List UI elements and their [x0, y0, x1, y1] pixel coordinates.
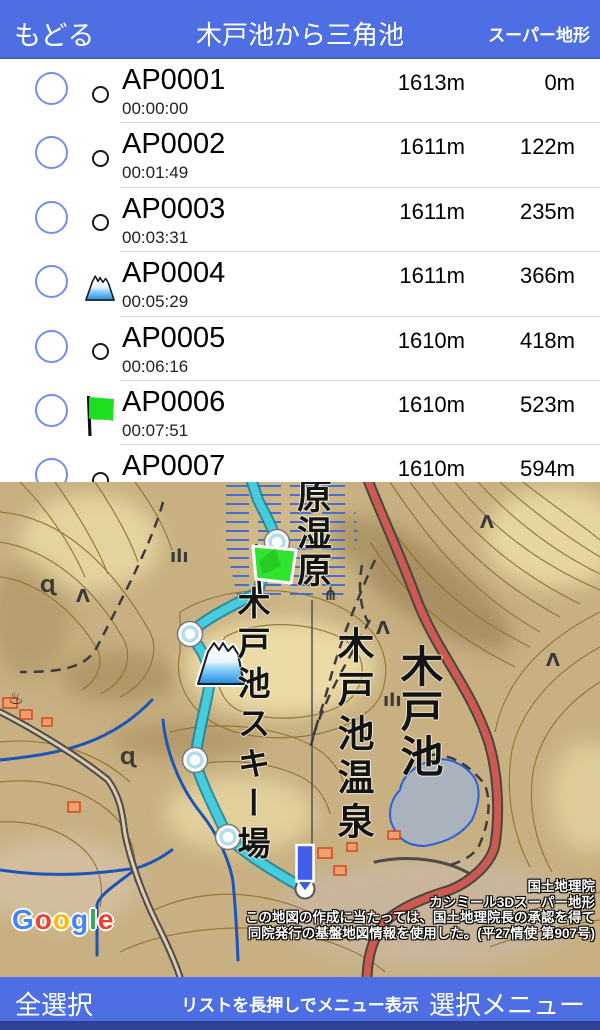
waypoint-name: AP0003 — [122, 193, 225, 226]
svg-text:Λ: Λ — [76, 586, 90, 607]
waypoint-name: AP0006 — [122, 386, 225, 419]
top-navigation-bar: もどる 木戸池から三角池 スーパー地形 — [0, 0, 600, 59]
selection-circle[interactable] — [35, 136, 68, 169]
mountain-icon — [84, 270, 116, 304]
map-label-lake: 木戸池 — [396, 644, 439, 779]
map-label-ski-area: 木戸池スキー場 — [235, 586, 268, 866]
map-label-wetland: 原湿原 — [294, 482, 329, 589]
waypoint-distance: 418m — [520, 328, 575, 354]
selection-circle[interactable] — [35, 394, 68, 427]
waypoint-dot-icon — [84, 463, 116, 482]
waypoint-distance: 0m — [544, 70, 575, 96]
bottom-toolbar: 全選択 リストを長押しでメニュー表示 選択メニュー — [0, 977, 600, 1021]
waypoint-elevation: 1611m — [399, 134, 465, 160]
selection-circle[interactable] — [35, 458, 68, 482]
svg-text:Λ: Λ — [546, 650, 560, 671]
list-item[interactable]: AP0001 00:00:00 1613m 0m — [0, 59, 600, 123]
svg-text:♨: ♨ — [8, 688, 24, 709]
waypoint-dot-icon — [84, 141, 116, 175]
waypoint-distance: 366m — [520, 263, 575, 289]
google-logo: Google — [12, 904, 114, 936]
svg-text:Ɋ: Ɋ — [120, 748, 137, 769]
waypoint-dot-icon — [84, 335, 116, 369]
map-label-onsen: 木戸池温泉 — [334, 626, 371, 846]
waypoint-name: AP0007 — [122, 450, 225, 482]
list-item[interactable]: AP0002 00:01:49 1611m 122m — [0, 123, 600, 187]
waypoint-list[interactable]: AP0001 00:00:00 1613m 0m AP0002 00:01:49… — [0, 59, 600, 482]
map-view[interactable]: ♨ΛΛΛΛ⋔ılıılıɊɊ — [0, 482, 600, 977]
waypoint-name: AP0005 — [122, 322, 225, 355]
waypoint-elevation: 1611m — [399, 263, 465, 289]
list-item[interactable]: AP0004 00:05:29 1611m 366m — [0, 252, 600, 316]
waypoint-distance: 523m — [520, 392, 575, 418]
waypoint-distance: 122m — [520, 134, 575, 160]
waypoint-distance: 594m — [520, 456, 575, 482]
selection-circle[interactable] — [35, 201, 68, 234]
waypoint-name: AP0001 — [122, 64, 225, 97]
svg-text:Λ: Λ — [376, 618, 390, 639]
selection-circle[interactable] — [35, 265, 68, 298]
waypoint-elevation: 1611m — [399, 199, 465, 225]
svg-text:ılı: ılı — [170, 546, 189, 567]
waypoint-distance: 235m — [520, 199, 575, 225]
waypoint-time: 00:06:16 — [122, 357, 188, 377]
svg-text:Λ: Λ — [480, 512, 494, 533]
waypoint-time: 00:00:00 — [122, 99, 188, 119]
app-screen: もどる 木戸池から三角池 スーパー地形 AP0001 00:00:00 1613… — [0, 0, 600, 1030]
list-item[interactable]: AP0003 00:03:31 1611m 235m — [0, 188, 600, 252]
selection-menu-button[interactable]: 選択メニュー — [429, 985, 585, 1022]
waypoint-name: AP0002 — [122, 128, 225, 161]
list-item[interactable]: AP0007 1610m 594m — [0, 445, 600, 482]
attribution-line: 国土地理院 — [245, 879, 595, 895]
attribution-line: 同院発行の基盤地図情報を使用した。(平27情使 第907号) — [245, 926, 595, 942]
map-style-button[interactable]: スーパー地形 — [488, 21, 590, 46]
flag-icon — [84, 399, 116, 433]
waypoint-marker — [178, 622, 203, 647]
waypoint-dot-icon — [84, 206, 116, 240]
svg-text:Ɋ: Ɋ — [40, 576, 57, 597]
waypoint-time: 00:07:51 — [122, 421, 188, 441]
waypoint-name: AP0004 — [122, 257, 225, 290]
selection-circle[interactable] — [35, 72, 68, 105]
waypoint-elevation: 1610m — [398, 392, 465, 418]
bottom-strip — [0, 1021, 600, 1030]
selection-circle[interactable] — [35, 330, 68, 363]
waypoint-elevation: 1610m — [398, 328, 465, 354]
waypoint-elevation: 1610m — [398, 456, 465, 482]
waypoint-marker — [183, 748, 208, 773]
waypoint-time: 00:05:29 — [122, 292, 188, 312]
waypoint-elevation: 1613m — [398, 70, 465, 96]
waypoint-time: 00:03:31 — [122, 228, 188, 248]
map-attribution: 国土地理院 カシミール3Dスーパー地形 この地図の作成に当たっては、国土地理院長… — [245, 879, 595, 941]
attribution-line: カシミール3Dスーパー地形 — [245, 895, 595, 911]
attribution-line: この地図の作成に当たっては、国土地理院長の承認を得て — [245, 910, 595, 926]
list-item[interactable]: AP0005 00:06:16 1610m 418m — [0, 317, 600, 381]
waypoint-time: 00:01:49 — [122, 163, 188, 183]
waypoint-dot-icon — [84, 77, 116, 111]
list-item[interactable]: AP0006 00:07:51 1610m 523m — [0, 381, 600, 445]
